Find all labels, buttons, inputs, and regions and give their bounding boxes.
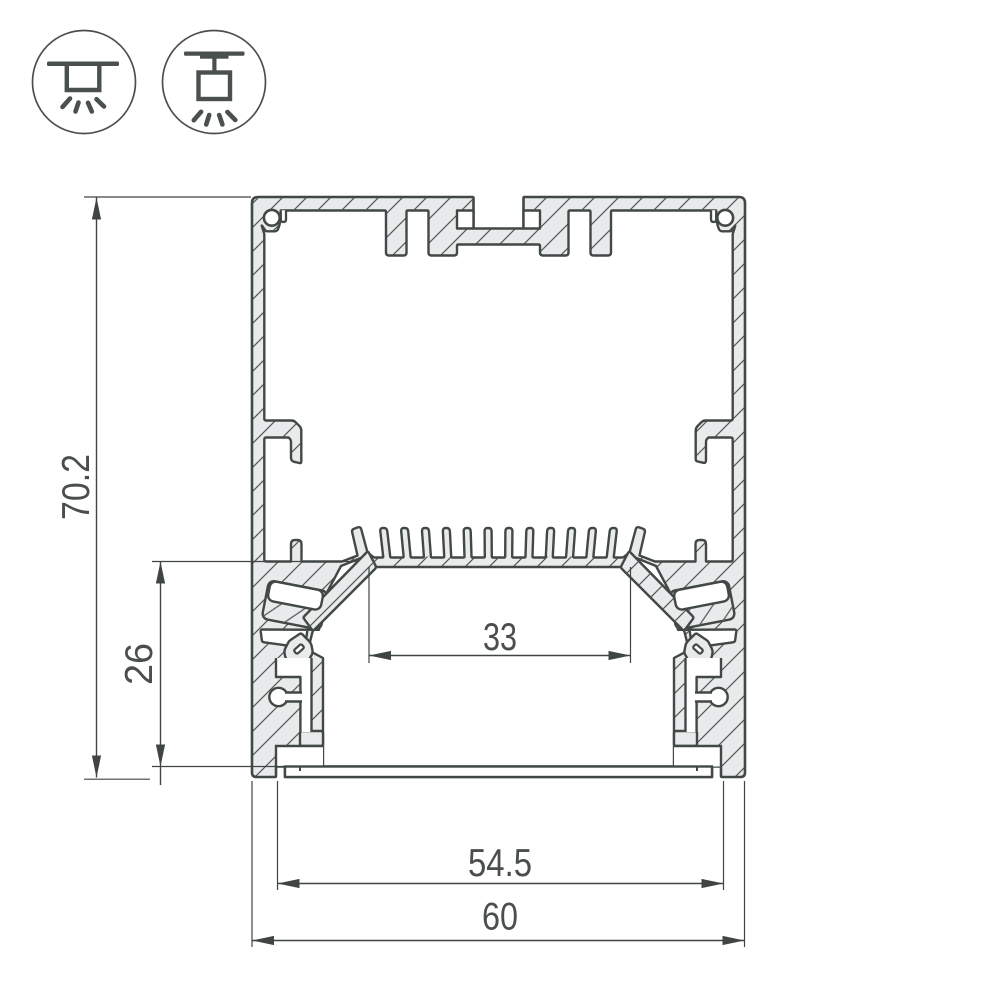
svg-text:60: 60	[482, 896, 518, 939]
svg-text:54.5: 54.5	[468, 842, 532, 885]
svg-text:26: 26	[118, 643, 161, 685]
svg-text:70.2: 70.2	[55, 454, 98, 520]
svg-text:33: 33	[483, 616, 517, 659]
